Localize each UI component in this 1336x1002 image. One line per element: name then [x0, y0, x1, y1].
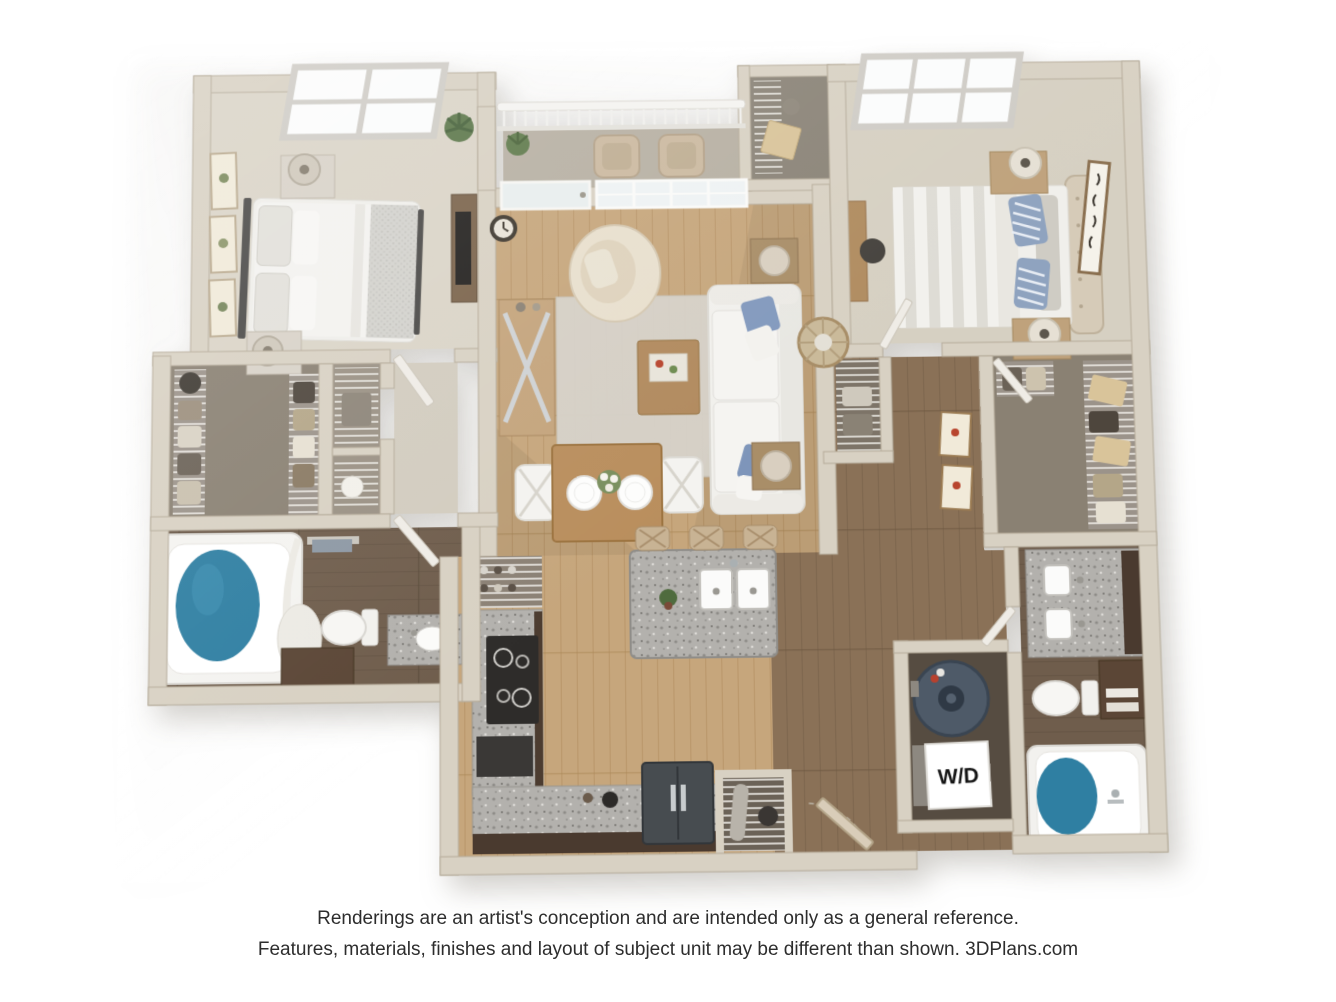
lighting-overlay [115, 41, 1241, 883]
disclaimer: Renderings are an artist's conception an… [0, 903, 1336, 965]
page: W/D [0, 0, 1336, 1002]
disclaimer-line-1: Renderings are an artist's conception an… [0, 903, 1336, 934]
disclaimer-line-2: Features, materials, finishes and layout… [0, 934, 1336, 965]
floor-plan-rendering: W/D [0, 6, 1336, 946]
floor-plan-wrapper: W/D [0, 6, 1336, 946]
